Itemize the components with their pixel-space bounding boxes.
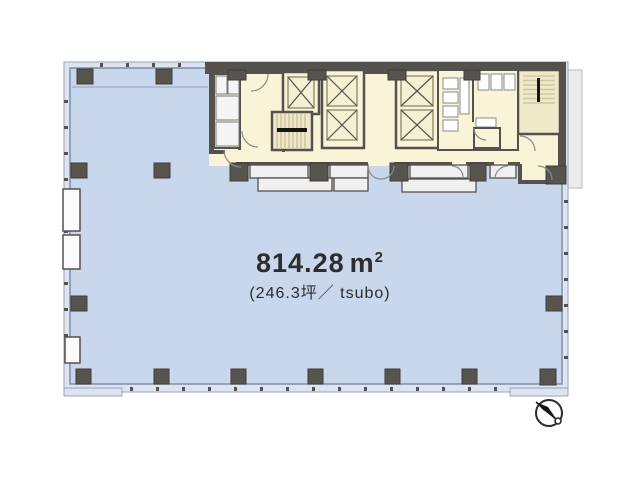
- shaft-room: [214, 74, 240, 148]
- facade-panel: [63, 189, 80, 231]
- duct-shaft: [216, 76, 227, 94]
- floor-plan-page: 814.28m2 (246.3坪／ tsubo): [0, 0, 640, 480]
- column: [388, 70, 406, 80]
- facade-panel: [65, 337, 80, 363]
- column: [231, 369, 246, 384]
- ac-unit: [334, 178, 368, 191]
- compass-knob: [555, 418, 561, 424]
- core-wall: [209, 150, 225, 154]
- column: [154, 369, 169, 384]
- column: [76, 369, 91, 384]
- ac-unit: [250, 165, 308, 178]
- compass-icon: [536, 400, 562, 426]
- stairwell-west: [272, 112, 312, 150]
- column: [546, 166, 566, 184]
- column: [308, 369, 323, 384]
- column: [308, 70, 326, 80]
- toilet-fixture: [491, 74, 502, 90]
- vestibule-wall: [518, 164, 522, 182]
- area-value: 814.28: [256, 248, 345, 278]
- area-unit: m: [350, 248, 375, 278]
- column: [230, 163, 248, 181]
- toilet-fixture: [504, 74, 515, 90]
- column: [77, 69, 93, 84]
- floor-plan-drawing: [0, 0, 640, 480]
- restrooms: [438, 70, 518, 150]
- facade-step-bottom-left: [64, 388, 122, 396]
- stairwell-east: [518, 70, 560, 134]
- column: [310, 163, 328, 181]
- column: [71, 163, 87, 178]
- duct-shaft: [216, 122, 239, 146]
- sink-counter: [476, 118, 496, 127]
- area-tsubo-line: (246.3坪／ tsubo): [190, 279, 450, 303]
- column: [154, 163, 170, 178]
- toilet-fixture: [443, 106, 458, 117]
- toilet-fixture: [443, 78, 458, 89]
- facade-step-bottom-right: [510, 388, 568, 396]
- stair-handrail: [537, 78, 540, 102]
- facade-panel: [63, 235, 80, 269]
- ac-unit: [410, 165, 468, 178]
- column: [462, 369, 477, 384]
- area-m2-line: 814.28m2: [190, 244, 450, 277]
- column: [385, 369, 400, 384]
- area-unit-sup: 2: [375, 249, 384, 266]
- stair-handrail: [277, 128, 307, 132]
- column: [228, 70, 246, 80]
- ac-unit: [402, 179, 476, 192]
- area-label: 814.28m2 (246.3坪／ tsubo): [190, 244, 450, 303]
- service-closet: [474, 128, 500, 148]
- column: [546, 296, 562, 311]
- column: [71, 296, 87, 311]
- toilet-fixture: [443, 120, 458, 131]
- column: [156, 69, 172, 84]
- duct-shaft: [216, 96, 239, 120]
- column: [464, 70, 480, 80]
- column: [470, 163, 486, 181]
- sink-counter: [460, 78, 469, 114]
- toilet-fixture: [443, 92, 458, 103]
- column: [540, 369, 556, 385]
- ac-unit: [330, 165, 368, 178]
